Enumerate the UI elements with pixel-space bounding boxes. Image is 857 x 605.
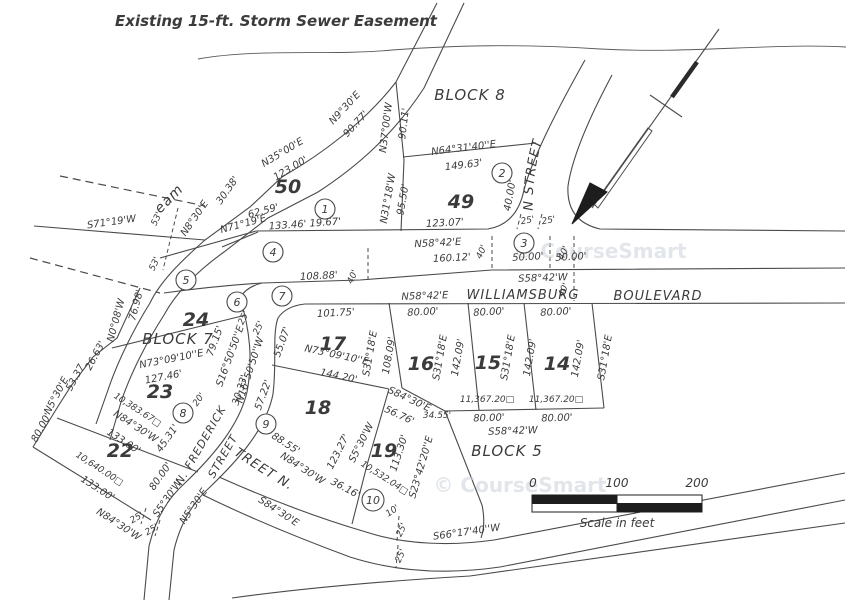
dist-144-20: 144.20' (319, 367, 358, 386)
lot-49-number: 49 (447, 191, 474, 213)
emerson-east-row (568, 75, 845, 231)
emerson-street-name-text: N. EMERSON STREET (0, 0, 546, 211)
tick-25-frederick-bot-a: 25' (128, 510, 145, 526)
curve-number-7: 7 (279, 290, 286, 303)
bearing-s31-14: S31°18'E (596, 333, 615, 381)
dist-40-00: 40.00' (502, 179, 518, 212)
bearing-s66-17: S66°17'40''W (432, 522, 502, 542)
curve-marker-2: 2 (492, 163, 512, 183)
bearing-n5-frederick: N5°30'E (178, 486, 211, 526)
dist-108-88: 108.88' (300, 270, 338, 283)
curve-number-3: 3 (521, 237, 528, 250)
tick-25-33rd-a: 25' (395, 522, 410, 539)
curve-number-1: 1 (322, 203, 329, 216)
dist-80-bottom-14: 80.00' (541, 412, 573, 424)
curve-marker-5: 5 (176, 270, 196, 290)
stream-name-text: Stream (0, 0, 187, 217)
tick-40-b: 40' (475, 244, 490, 261)
tick-25-frederick-bot-b: 25' (143, 522, 160, 538)
curve-marker-7: 7 (272, 286, 292, 306)
tick-25-emerson-b: 25' (541, 215, 556, 227)
plat-map-canvas: © CourseSmart © CourseSmart 0 100 200 Sc… (0, 0, 857, 605)
lot-14-number: 14 (544, 353, 570, 375)
third-street-outer-line (232, 523, 845, 598)
dist-50-a: 50.00' (512, 251, 544, 264)
dist-80-bottom-15: 80.00' (473, 412, 505, 424)
dashed-tie-53 (163, 208, 178, 270)
dist-56-76: 56.76' (383, 404, 416, 427)
block5-label: BLOCK 5 (471, 442, 543, 460)
lot-16-number: 16 (408, 353, 434, 375)
tick-20: 20' (191, 391, 207, 408)
bearing-s84-33rd: S84°30'E (256, 495, 301, 530)
dist-101-75: 101.75' (317, 307, 355, 320)
dist-142-15: 142.09' (522, 338, 539, 377)
curve-marker-8: 8 (173, 403, 193, 423)
bearing-n37: N37°00'W (378, 101, 395, 154)
lot-18-number: 18 (305, 397, 331, 419)
third-street-south-row (203, 495, 845, 571)
scale-tick-0: 0 (529, 476, 537, 490)
curve-marker-10: 10 (362, 489, 384, 511)
tick-25-emerson-a: 25' (520, 215, 535, 227)
dist-80-top-16: 80.00' (407, 306, 439, 319)
block7-label: BLOCK 7 (142, 330, 214, 348)
area-lot14: 11,367.20□ (529, 395, 583, 405)
dist-80-top-15: 80.00' (473, 306, 505, 319)
plat-map-page: © CourseSmart © CourseSmart 0 100 200 Sc… (0, 0, 857, 605)
bearing-s23-42: S23°42'20''E (407, 434, 435, 499)
bearing-s58-lower: S58°42'W (488, 425, 539, 438)
curve-number-4: 4 (270, 246, 277, 259)
curve-marker-6: 6 (227, 292, 247, 312)
bearing-s31-15: S31°18'E (499, 333, 518, 381)
dist-123-07: 123.07' (426, 217, 464, 230)
dist-149-63: 149.63' (444, 158, 483, 174)
dist-80-top-14: 80.00' (540, 306, 572, 319)
stream-name: Stream (0, 0, 187, 217)
curve-number-10: 10 (366, 494, 380, 507)
curve-number-5: 5 (183, 274, 190, 287)
lot-24-number: 24 (183, 309, 209, 331)
curve-marker-3: 3 (514, 233, 534, 253)
approach-line-upper (160, 231, 256, 258)
dist-34-55: 34.55' (423, 411, 451, 421)
curve-number-6: 6 (234, 296, 241, 309)
dist-123-27: 123.27' (325, 433, 352, 472)
bearing-n8-30: N8°30'E (179, 198, 212, 238)
bearing-n58-boulevard: N58°42'E (401, 290, 449, 303)
north-arrow (572, 29, 719, 224)
dist-57-22: 57.22' (253, 379, 274, 412)
scale-caption: Scale in feet (580, 516, 656, 530)
lot-15-number: 15 (475, 352, 501, 374)
bearing-n0-08: N0°08'W (106, 297, 128, 344)
bearing-s31-17: S31°18'E (361, 329, 380, 377)
watermark-text-lower: © CourseSmart (433, 473, 607, 497)
bearing-n73-2423: N73°09'10''E (138, 348, 205, 371)
tick-25-frederick-top-b: 25' (252, 320, 267, 337)
curve-number-9: 9 (263, 418, 270, 431)
dist-142-14: 142.09' (570, 339, 587, 378)
area-lot15: 11,367.20□ (460, 395, 514, 405)
dist-30-38: 30.38' (214, 175, 241, 207)
lot15-14-south-line (445, 408, 604, 411)
emerson-street-name: N. EMERSON STREET (0, 0, 546, 211)
curve-marker-1: 1 (315, 199, 335, 219)
dist-45-31: 45.31' (154, 423, 181, 455)
bearing-s71: S71°19'W (86, 213, 138, 231)
scale-tick-200: 200 (686, 476, 709, 490)
tick-40-a: 40' (346, 269, 361, 286)
bearing-n31: N31°18'W (379, 172, 399, 225)
bearing-n64: N64°31'40''E (431, 139, 498, 158)
dist-142-16: 142.09' (450, 338, 467, 377)
curve-marker-9: 9 (256, 414, 276, 434)
dist-76-98: 76.98' (127, 289, 146, 322)
boulevard-name: BOULEVARD (613, 289, 702, 304)
scale-tick-100: 100 (606, 476, 629, 490)
curve-number-2: 2 (499, 167, 506, 180)
wavy-contour-line (198, 46, 846, 59)
block8-label: BLOCK 8 (434, 86, 506, 104)
dist-108-09: 108.09' (381, 336, 398, 375)
curve-number-8: 8 (180, 407, 187, 420)
dist-36-16: 36.16' (329, 477, 362, 501)
dist-95-50: 95.50' (395, 183, 411, 216)
dashed-easement-lower (30, 258, 160, 293)
curve-marker-4: 4 (263, 242, 283, 262)
dist-160-12: 160.12' (433, 252, 471, 265)
bearing-n58-upper: N58°42'E (414, 237, 462, 250)
dist-26-63: 26.63' (84, 339, 108, 372)
easement-title: Existing 15-ft. Storm Sewer Easement (115, 12, 438, 30)
tick-25-33rd-b: 25' (394, 548, 409, 565)
williamsburg-south-line (305, 303, 845, 304)
